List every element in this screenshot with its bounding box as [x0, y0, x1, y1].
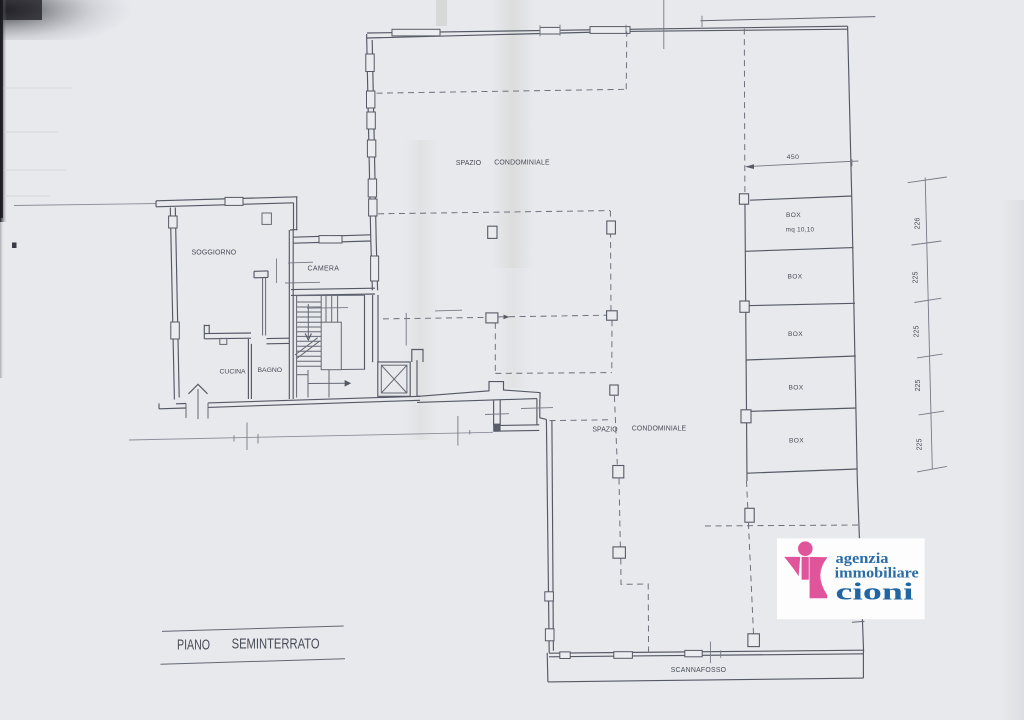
svg-text:mq 10,10: mq 10,10	[786, 227, 815, 234]
svg-text:225: 225	[913, 272, 920, 284]
svg-text:225: 225	[915, 380, 922, 392]
svg-text:BOX: BOX	[787, 274, 802, 281]
svg-text:CONDOMINIALE: CONDOMINIALE	[494, 159, 550, 166]
svg-text:BAGNO: BAGNO	[258, 367, 283, 374]
svg-text:226: 226	[915, 218, 922, 230]
svg-text:CAMERA: CAMERA	[308, 266, 340, 273]
svg-text:SCANNAFOSSO: SCANNAFOSSO	[671, 667, 727, 674]
svg-text:cioni: cioni	[836, 579, 915, 605]
svg-text:CONDOMINIALE: CONDOMINIALE	[632, 426, 687, 433]
svg-text:SPAZIO: SPAZIO	[592, 426, 618, 433]
svg-text:BOX: BOX	[789, 438, 804, 445]
svg-text:BOX: BOX	[788, 385, 803, 392]
svg-text:450: 450	[787, 154, 800, 161]
svg-text:225: 225	[914, 326, 921, 338]
svg-text:SOGGIORNO: SOGGIORNO	[192, 250, 237, 257]
svg-text:BOX: BOX	[788, 331, 803, 338]
svg-text:agenzia: agenzia	[836, 551, 890, 567]
svg-text:PIANO: PIANO	[177, 637, 210, 653]
svg-text:BOX: BOX	[786, 212, 801, 219]
svg-text:CUCINA: CUCINA	[220, 369, 247, 376]
svg-text:SPAZIO: SPAZIO	[456, 160, 482, 167]
svg-text:225: 225	[917, 439, 924, 451]
svg-text:SEMINTERRATO: SEMINTERRATO	[232, 637, 320, 653]
